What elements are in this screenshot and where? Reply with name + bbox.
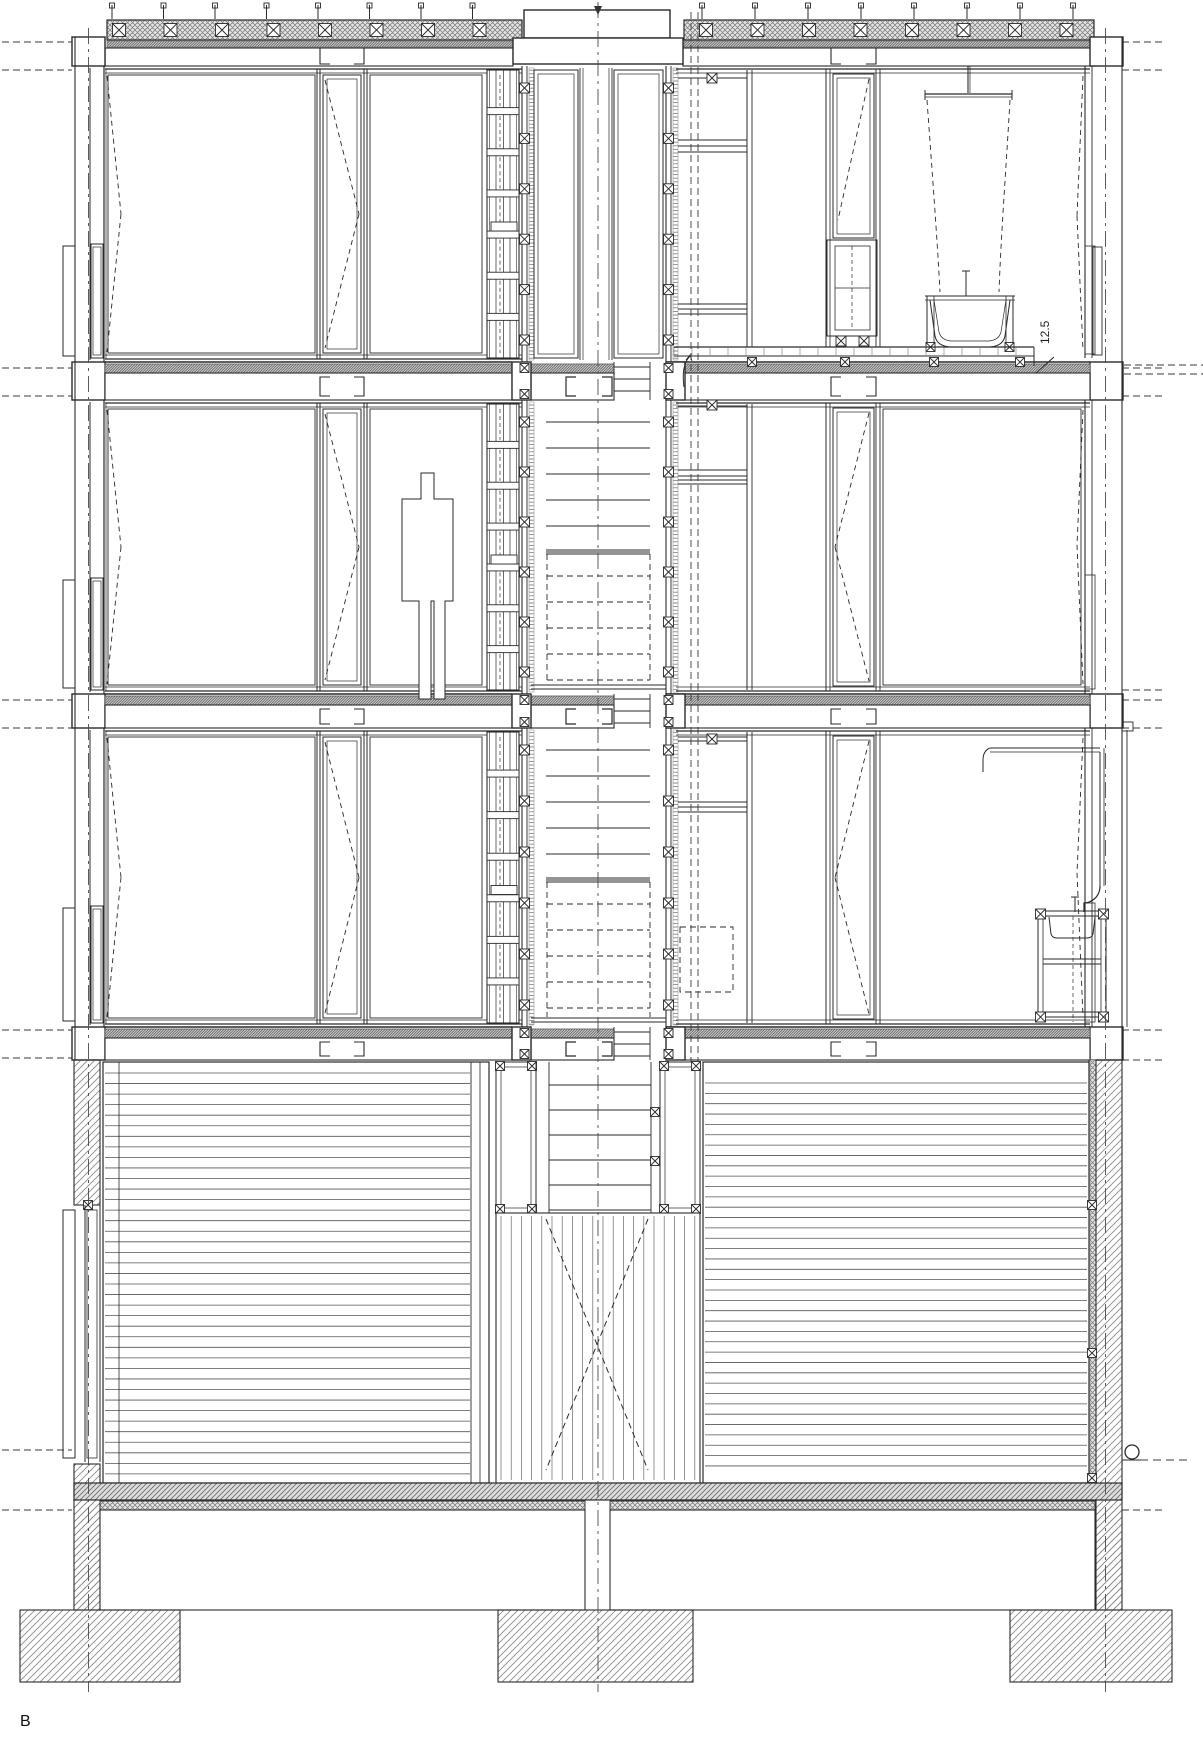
svg-text:B: B <box>20 1713 31 1730</box>
svg-text:12.5: 12.5 <box>1038 320 1052 344</box>
